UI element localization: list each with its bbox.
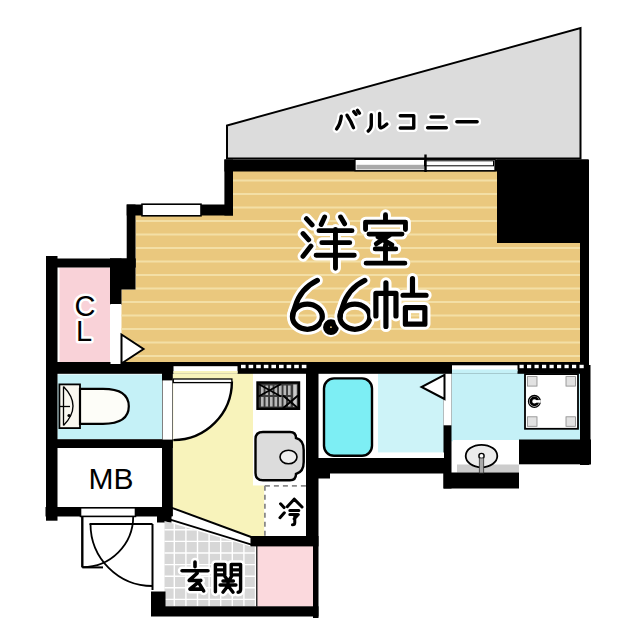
svg-text:L: L (76, 315, 92, 347)
svg-text:MB: MB (89, 462, 134, 495)
